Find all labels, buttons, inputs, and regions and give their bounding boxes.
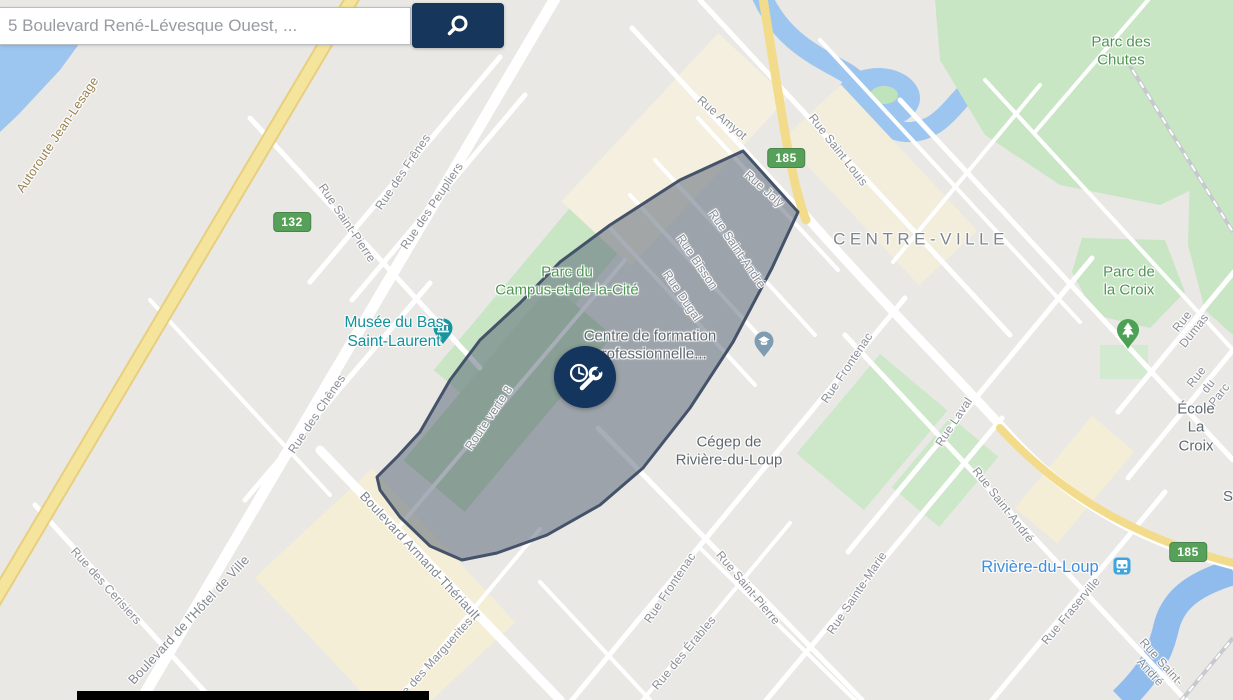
transit-station-icon[interactable] [1114,558,1131,575]
magnifier-icon [445,13,471,39]
clock-wrench-icon [565,357,605,397]
bottom-black-bar [77,691,429,700]
search-bar [0,3,504,48]
map-view[interactable]: Autoroute Jean-LesageRue AmyotRue Saint … [0,0,1233,700]
service-marker[interactable] [554,346,616,408]
map-canvas [0,0,1233,700]
search-input[interactable] [0,7,411,45]
search-button[interactable] [412,3,504,48]
